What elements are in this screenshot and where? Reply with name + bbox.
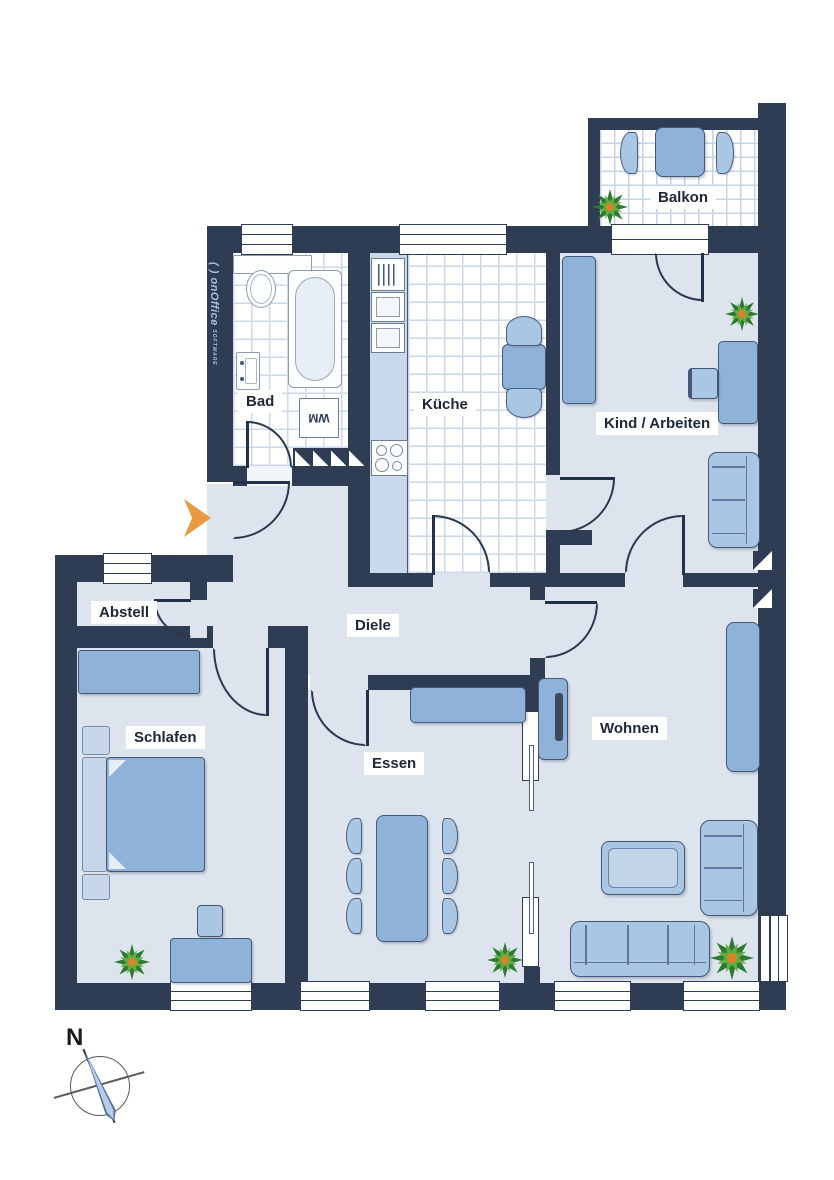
window-bad [241,224,293,255]
wall-diele-wohnen-b [530,658,545,675]
room-label-essen: Essen [364,752,424,775]
plant-wohnen [710,936,754,980]
essen-chair [346,898,362,934]
onoffice-watermark: ( ) onOffice SOFTWARE [208,262,220,366]
wall-bad-south-b [292,466,348,486]
washing-machine: WM [299,398,339,438]
schlafen-nightstand-bottom [82,874,110,900]
room-label-kueche: Küche [414,393,476,416]
balkon-chair-left [620,132,638,174]
window-abstell [103,553,152,584]
kueche-oven [371,292,405,322]
room-label-kind-arbeiten: Kind / Arbeiten [596,412,718,435]
wall-south [55,983,786,1010]
wall-bad-kueche [348,253,370,573]
wall-west [55,555,77,1010]
schlafen-doorway [213,626,268,648]
hatched-shaft-marker [295,450,310,466]
room-label-abstell: Abstell [91,601,157,624]
kind-desk-chair [688,368,718,399]
kueche-doorway-south [433,573,490,587]
wall-abstell-east-b [190,638,207,648]
abstell-doorway [190,600,207,638]
balkon-door-frame-line [612,239,708,241]
window-wohnen-2 [683,981,760,1011]
essen-chair [346,858,362,894]
kind-sofa [708,452,760,548]
kind-desk [718,341,758,424]
schlafen-nightstand-top [82,726,110,755]
schlafen-wardrobe [78,650,200,694]
bad-bathtub [288,270,342,388]
schlafen-bed-headboard [82,757,108,872]
hatched-shaft-marker [753,589,772,608]
window-wohnen-1 [554,981,631,1011]
kueche-chair-bottom [506,388,542,418]
kind-arbeiten-doorway [625,573,683,587]
wall-schlafen-north-b [268,626,308,648]
watermark-sub: SOFTWARE [211,329,217,365]
wohnen-sofa [570,921,710,977]
diele-floor-west [207,582,233,626]
window-wohnen-east [760,915,788,982]
hatched-shaft-marker [313,450,328,466]
compass-north-label: N [66,1024,83,1052]
schlafen-stool [197,905,223,937]
wall-abstell-east-a [190,582,207,600]
sliding-door-leaf-top [529,745,534,811]
wohnen-armchair [700,820,758,916]
wohnen-sideboard [726,622,760,772]
room-label-wohnen: Wohnen [592,717,667,740]
balkon-door-threshold [611,224,709,255]
plant-balkon [592,189,628,225]
plant-essen [487,942,523,978]
balkon-wall-east [758,103,786,233]
window-essen-2 [425,981,500,1011]
schlafen-dresser [170,938,252,983]
plant-schlafen [114,944,150,980]
wohnen-doorway [530,600,545,658]
kueche-table [502,344,546,390]
wall-mid-band-a [348,573,433,587]
wall-east [758,226,786,1010]
window-kueche [399,224,507,255]
balkon-table [655,127,705,177]
watermark-brand: ( ) onOffice [208,262,220,326]
hatched-shaft-marker [349,450,364,466]
wohnen-coffee-table [601,841,685,895]
schlafen-bed [106,757,205,872]
bad-toilet [236,352,260,390]
tv-screen [555,693,563,741]
kind-bed [562,256,596,404]
window-essen-1 [300,981,370,1011]
hatched-shaft-marker [331,450,346,466]
diele-floor-neck [308,486,348,675]
essen-doorway [310,675,368,690]
sliding-door-leaf-bottom [529,862,534,934]
essen-table [376,815,428,942]
room-label-diele: Diele [347,614,399,637]
wall-mid-band-b [490,573,625,587]
kueche-vent-unit [371,258,405,291]
room-label-schlafen: Schlafen [126,726,205,749]
wall-mid-band-c [683,573,758,587]
wall-schlafen-essen [285,648,308,983]
entrance-doorway [207,484,233,555]
wall-kueche-east-b [546,530,560,573]
kind-arbeiten-niche [560,545,592,573]
wall-kueche-east-a [546,253,560,475]
essen-sideboard [410,687,526,723]
wall-essen-wohnen-b [524,967,540,983]
window-schlafen [170,981,252,1011]
bad-sink [246,270,276,308]
wohnen-tv-cabinet [538,678,568,760]
kueche-oven-2 [371,323,405,353]
hatched-shaft-marker [753,551,772,570]
essen-chair [346,818,362,854]
room-label-balkon: Balkon [650,186,716,209]
plant-kind-arbeiten [725,297,759,331]
wall-diele-wohnen-a [530,587,545,600]
washing-machine-label: WM [300,399,338,437]
floorplan-canvas: WM [0,0,834,1180]
essen-door-leaf [366,690,369,746]
kueche-chair-top [506,316,542,346]
kueche-stove [371,440,408,476]
room-label-bad: Bad [238,390,282,413]
kueche-doorway-east [546,475,560,530]
